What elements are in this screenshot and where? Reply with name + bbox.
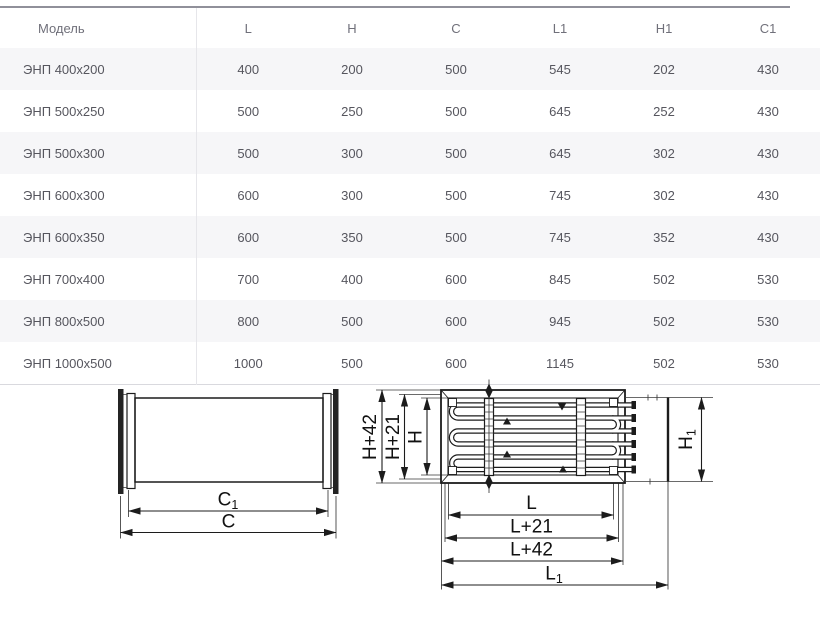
value-cell: 845 (508, 258, 612, 300)
side-panel (625, 395, 713, 485)
heater-dimension-drawing: H+42 H+21 H H1 L L+21 L+42 L1 (360, 372, 720, 602)
value-cell: 500 (196, 90, 300, 132)
table-row: ЭНП 400x200 400 200 500 545 202 430 (0, 48, 820, 90)
value-cell: 500 (404, 216, 508, 258)
value-cell: 202 (612, 48, 716, 90)
duct-side-view-drawing: C1 C (95, 378, 360, 546)
value-cell: 400 (196, 48, 300, 90)
column-header-c: C (404, 8, 508, 48)
model-cell: ЭНП 700x400 (0, 258, 196, 300)
model-cell: ЭНП 400x200 (0, 48, 196, 90)
heating-elements (452, 401, 637, 474)
value-cell: 745 (508, 174, 612, 216)
value-cell: 600 (404, 300, 508, 342)
value-cell: 502 (612, 300, 716, 342)
dim-label-l42: L+42 (510, 540, 553, 561)
dim-label-c: C (222, 512, 236, 533)
value-cell: 600 (404, 258, 508, 300)
value-cell: 200 (300, 48, 404, 90)
value-cell: 430 (716, 216, 820, 258)
value-cell: 300 (300, 174, 404, 216)
value-cell: 745 (508, 216, 612, 258)
value-cell: 530 (716, 300, 820, 342)
table-row: ЭНП 500x250 500 250 500 645 252 430 (0, 90, 820, 132)
duct-body (118, 389, 339, 494)
value-cell: 600 (196, 216, 300, 258)
value-cell: 430 (716, 48, 820, 90)
table-row: ЭНП 700x400 700 400 600 845 502 530 (0, 258, 820, 300)
dim-label-h: H (406, 430, 427, 444)
dim-label-h42: H+42 (360, 414, 381, 460)
value-cell: 350 (300, 216, 404, 258)
value-cell: 600 (196, 174, 300, 216)
value-cell: 645 (508, 132, 612, 174)
dim-label-l: L (526, 493, 537, 514)
value-cell: 500 (404, 48, 508, 90)
dim-label-h1: H1 (676, 429, 699, 450)
value-cell: 530 (716, 258, 820, 300)
direction-arrows (503, 404, 567, 473)
header-row: Модель L H C L1 H1 C1 (0, 8, 820, 48)
table-row: ЭНП 800x500 800 500 600 945 502 530 (0, 300, 820, 342)
model-cell: ЭНП 600x350 (0, 216, 196, 258)
model-cell: ЭНП 800x500 (0, 300, 196, 342)
column-header-l: L (196, 8, 300, 48)
value-cell: 430 (716, 132, 820, 174)
column-header-h1: H1 (612, 8, 716, 48)
value-cell: 430 (716, 90, 820, 132)
tube-terminals (632, 401, 637, 474)
value-cell: 500 (300, 300, 404, 342)
value-cell: 302 (612, 132, 716, 174)
support-brackets (485, 399, 586, 476)
page: Модель L H C L1 H1 C1 ЭНП 400x200 400 20… (0, 0, 820, 622)
value-cell: 250 (300, 90, 404, 132)
dim-label-c1: C1 (218, 490, 239, 513)
value-cell: 500 (196, 132, 300, 174)
value-cell: 530 (716, 342, 820, 385)
model-cell: ЭНП 600x300 (0, 174, 196, 216)
value-cell: 302 (612, 174, 716, 216)
value-cell: 945 (508, 300, 612, 342)
column-header-model: Модель (0, 8, 196, 48)
value-cell: 800 (196, 300, 300, 342)
value-cell: 252 (612, 90, 716, 132)
value-cell: 500 (404, 90, 508, 132)
value-cell: 400 (300, 258, 404, 300)
column-header-c1: C1 (716, 8, 820, 48)
dim-label-l21: L+21 (510, 517, 553, 538)
dim-label-h21: H+21 (383, 414, 404, 460)
value-cell: 545 (508, 48, 612, 90)
model-cell: ЭНП 500x300 (0, 132, 196, 174)
value-cell: 430 (716, 174, 820, 216)
table-row: ЭНП 600x350 600 350 500 745 352 430 (0, 216, 820, 258)
left-flange (118, 389, 124, 494)
column-header-h: H (300, 8, 404, 48)
value-cell: 700 (196, 258, 300, 300)
value-cell: 645 (508, 90, 612, 132)
model-cell: ЭНП 500x250 (0, 90, 196, 132)
value-cell: 300 (300, 132, 404, 174)
value-cell: 352 (612, 216, 716, 258)
value-cell: 502 (612, 258, 716, 300)
table-row: ЭНП 500x300 500 300 500 645 302 430 (0, 132, 820, 174)
dimensions-table: Модель L H C L1 H1 C1 ЭНП 400x200 400 20… (0, 8, 820, 385)
right-flange (333, 389, 339, 494)
table-row: ЭНП 600x300 600 300 500 745 302 430 (0, 174, 820, 216)
column-header-l1: L1 (508, 8, 612, 48)
value-cell: 500 (404, 132, 508, 174)
value-cell: 500 (404, 174, 508, 216)
dim-label-l1: L1 (545, 564, 563, 587)
